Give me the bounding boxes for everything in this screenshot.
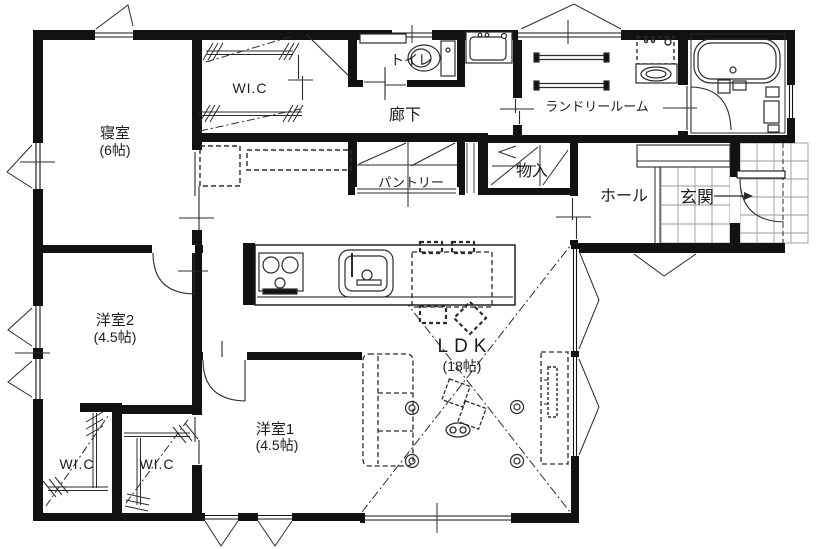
window-western2-left-1: [33, 306, 43, 348]
room-label-entrance: 玄関: [680, 188, 714, 207]
window-ldk-bottom: [365, 513, 511, 523]
room-size-western1: (4.5帖): [256, 437, 299, 453]
washing-machine-icon: [637, 37, 674, 64]
washbasin-icon: [466, 32, 512, 63]
laundry-drying-rods: [534, 53, 609, 90]
room-label-western1: 洋室1: [256, 421, 294, 438]
hall-sliding-door: [556, 196, 591, 240]
window-bedroom-top: [95, 30, 133, 40]
porch-tile-grid: [740, 143, 808, 243]
bedroom-sliding-door: [179, 150, 214, 230]
window-western1-bottom-1: [205, 513, 238, 521]
room-label-pantry: パントリー: [378, 175, 444, 190]
room-size-western2: (4.5帖): [94, 329, 137, 345]
room-label-wic-west: WI.C: [59, 456, 94, 472]
refrigerator-icon: [200, 146, 240, 186]
room-size-ldk: (18帖): [443, 358, 482, 374]
kitchen-back-counter: [200, 146, 351, 186]
window-laundry-top: [518, 30, 621, 40]
wic-south-door: [192, 415, 202, 465]
shoe-cabinet: [637, 145, 730, 167]
floor-plan-page: 寝室 (6帖) WI.C トイレ 廊下 ランドリールーム パントリー 物入 ホー…: [0, 0, 822, 549]
window-ldk-right-1: [571, 249, 579, 351]
room-label-bedroom: 寝室: [100, 124, 130, 142]
narrow-panel-lines: [467, 143, 474, 193]
room-label-hall: ホール: [600, 188, 648, 205]
entrance-step-edge: [655, 167, 660, 243]
coffee-table-icon: [442, 379, 486, 437]
room-label-western2: 洋室2: [96, 312, 134, 329]
downlights: [406, 401, 524, 468]
wic-north-door: [288, 53, 313, 100]
bathroom-door: [663, 85, 731, 131]
floor-plan-svg: 寝室 (6帖) WI.C トイレ 廊下 ランドリールーム パントリー 物入 ホー…: [0, 0, 822, 549]
laundry-sliding-door: [500, 98, 534, 125]
room-label-wic-mid: WI.C: [139, 456, 174, 472]
window-bedroom-left: [33, 143, 43, 189]
room-label-toilet: トイレ: [390, 52, 432, 68]
room-label-laundry: ランドリールーム: [545, 99, 649, 114]
tv-board-icon: [541, 352, 568, 464]
toilet-sliding-door: [363, 67, 407, 100]
room-label-wic-north: WI.C: [232, 80, 267, 96]
bathtub-icon: [691, 34, 785, 133]
room-label-ldk: LDK: [438, 336, 493, 357]
window-ldk-right-2: [571, 357, 579, 456]
kitchen-counter: [255, 245, 515, 305]
cupboard-icon: [247, 150, 351, 170]
room-size-bedroom: (6帖): [99, 142, 130, 158]
room-label-storage: 物入: [516, 162, 548, 180]
room-label-hallway: 廊下: [389, 106, 421, 124]
window-western2-left-2: [33, 359, 43, 399]
window-western1-bottom-2: [258, 513, 292, 521]
window-bath-right: [787, 85, 795, 118]
western1-door: [203, 341, 247, 401]
laundry-sink-icon: [636, 64, 677, 83]
corridor-corner-line: [306, 34, 351, 78]
